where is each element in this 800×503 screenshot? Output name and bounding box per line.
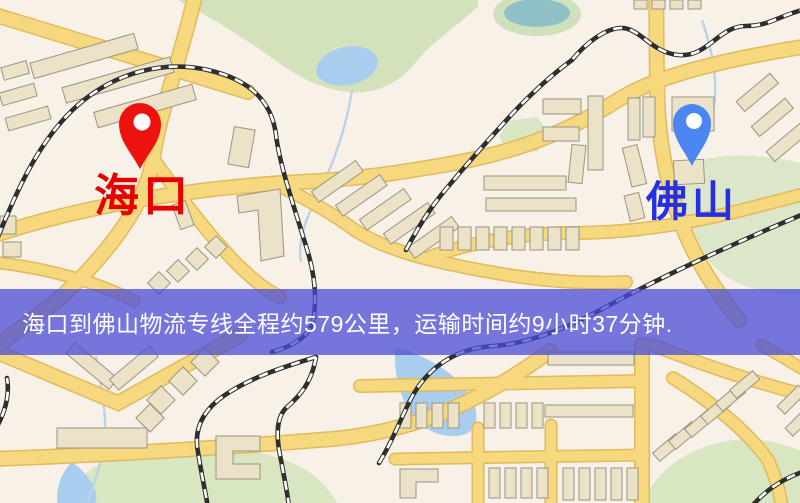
origin-pin-icon [117, 100, 163, 172]
logistics-route-map: 海口 佛山 海口到佛山物流专线全程约579公里，运输时间约9小时37分钟. [0, 0, 800, 503]
origin-city-label: 海口 [58, 174, 228, 219]
origin-pin-shape [119, 103, 161, 169]
destination-pin-icon [671, 101, 713, 169]
origin-pin-hole [134, 114, 151, 131]
route-info-banner: 海口到佛山物流专线全程约579公里，运输时间约9小时37分钟. [0, 289, 800, 355]
map-canvas [0, 0, 800, 503]
route-info-text: 海口到佛山物流专线全程约579公里，运输时间约9小时37分钟. [22, 305, 673, 339]
destination-city-label: 佛山 [608, 182, 776, 224]
destination-pin-hole [686, 113, 702, 129]
